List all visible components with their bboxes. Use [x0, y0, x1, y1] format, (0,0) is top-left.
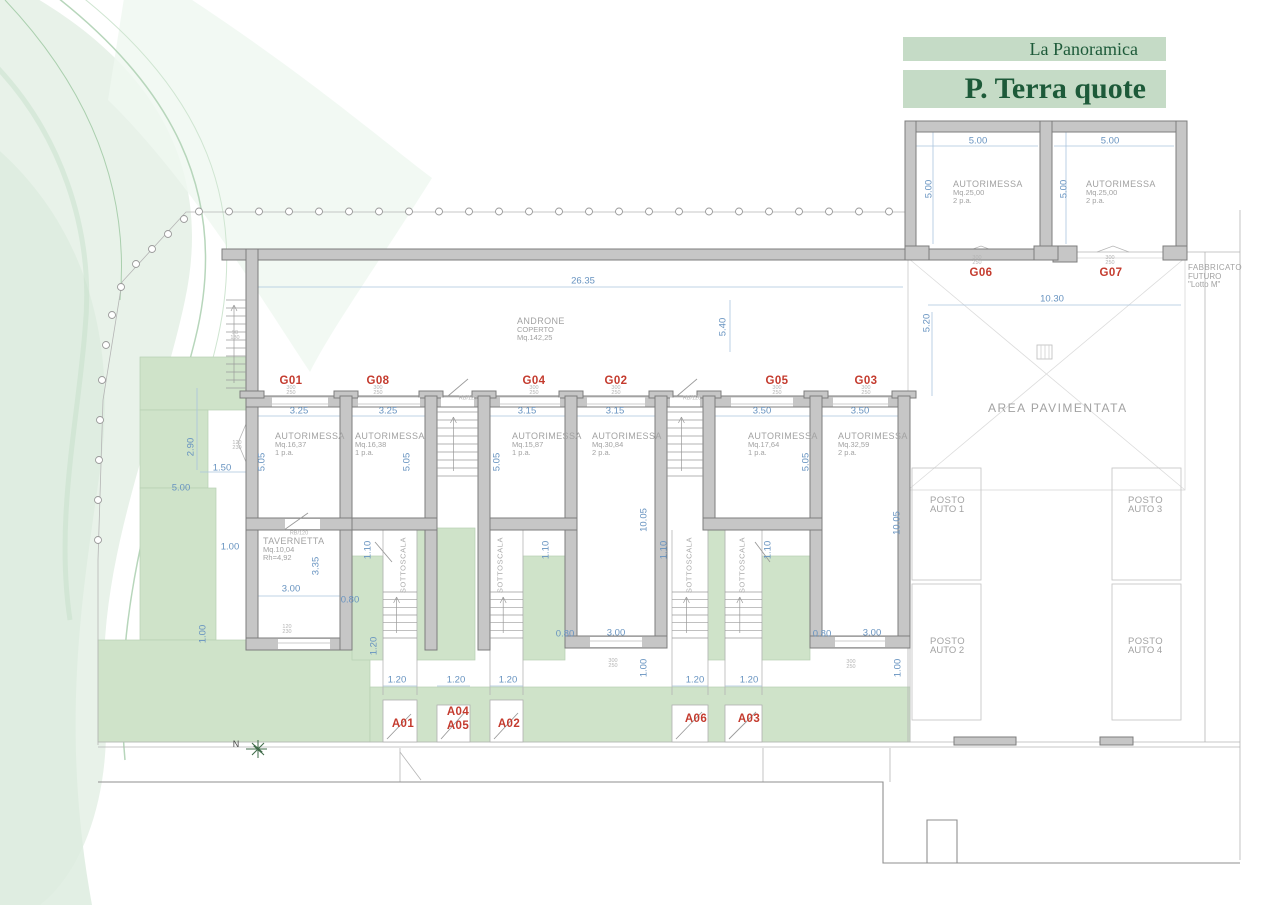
sottoscala-label: SOTTOSCALA — [399, 537, 408, 593]
room-label: AUTORIMESSAMq.16,381 p.a. — [355, 431, 425, 457]
dimension-label: 1.00 — [639, 659, 650, 678]
size-tag-label: 300 250 — [286, 386, 295, 396]
dimension-label: 5.00 — [172, 483, 191, 494]
unit-label-a04: A04 — [447, 706, 469, 718]
dimension-label: 0.80 — [341, 595, 360, 606]
size-tag-label: 300 250 — [846, 660, 855, 670]
sottoscala-label: SOTTOSCALA — [496, 537, 505, 593]
room-label: POSTOAUTO 1 — [930, 496, 965, 514]
dimension-label: 1.20 — [388, 675, 407, 686]
room-label: AUTORIMESSAMq.25,002 p.a. — [953, 179, 1023, 205]
dimension-label: 10.30 — [1040, 294, 1064, 305]
dimension-label: 5.05 — [257, 453, 268, 472]
room-label: AUTORIMESSAMq.15,871 p.a. — [512, 431, 582, 457]
size-tag-label: 300 250 — [608, 659, 617, 669]
sottoscala-label: SOTTOSCALA — [738, 537, 747, 593]
dimension-label: 3.25 — [379, 406, 398, 417]
dimension-label: 10.05 — [639, 508, 650, 532]
unit-label-a03: A03 — [738, 713, 760, 725]
unit-label-a01: A01 — [392, 718, 414, 730]
size-tag-label: 120 230 — [282, 625, 291, 635]
dimension-label: 3.15 — [518, 406, 537, 417]
size-tag-label: 300 250 — [972, 256, 981, 266]
dimension-label: 1.10 — [659, 541, 670, 560]
dimension-label: 5.05 — [492, 453, 503, 472]
dimension-label: 1.10 — [541, 541, 552, 560]
size-tag-label: 300 250 — [861, 386, 870, 396]
unit-label-a05: A05 — [447, 720, 469, 732]
dimension-label: 3.00 — [282, 584, 301, 595]
size-tag-label: 300 250 — [529, 386, 538, 396]
size-tag-label: 300 250 — [1105, 256, 1114, 266]
room-label: POSTOAUTO 4 — [1128, 637, 1163, 655]
dimension-label: 3.00 — [607, 628, 626, 639]
dimension-label: 5.00 — [924, 180, 935, 199]
room-label: AUTORIMESSAMq.30,842 p.a. — [592, 431, 662, 457]
size-tag-label: 120 230 — [232, 441, 241, 451]
dimension-label: 5.00 — [1101, 136, 1120, 147]
dimension-label: 0.80 — [813, 629, 832, 640]
unit-label-g07: G07 — [1100, 267, 1123, 279]
dimension-label: 1.20 — [369, 637, 380, 656]
dimension-label: 3.50 — [753, 406, 772, 417]
room-label: FABBRICATOFUTURO"Lotto M" — [1188, 263, 1242, 289]
unit-label-a06: A06 — [685, 713, 707, 725]
size-tag-label: 90 130 — [230, 331, 239, 341]
dimension-label: 3.50 — [851, 406, 870, 417]
unit-label-g06: G06 — [970, 267, 993, 279]
unit-label-a02: A02 — [498, 718, 520, 730]
dimension-label: 1.00 — [198, 625, 209, 644]
dimension-label: 0.80 — [556, 629, 575, 640]
sottoscala-label: SOTTOSCALA — [685, 537, 694, 593]
room-label: AUTORIMESSAMq.32,592 p.a. — [838, 431, 908, 457]
dimension-label: 1.20 — [499, 675, 518, 686]
dimension-label: 1.50 — [213, 463, 232, 474]
dimension-label: 3.25 — [290, 406, 309, 417]
dimension-label: 1.20 — [686, 675, 705, 686]
size-tag-label: RB/120 — [459, 397, 477, 402]
dimension-label: 5.00 — [969, 136, 988, 147]
room-label: AREA PAVIMENTATA — [988, 403, 1128, 413]
dimension-label: 5.40 — [718, 318, 729, 337]
dimension-label: 1.20 — [447, 675, 466, 686]
annotation-layer: 26.355.403.253.253.153.153.503.505.055.0… — [0, 0, 1280, 905]
size-tag-label: RB/120 — [683, 397, 701, 402]
room-label: AUTORIMESSAMq.17,641 p.a. — [748, 431, 818, 457]
size-tag-label: 300 250 — [373, 386, 382, 396]
dimension-label: 1.10 — [363, 541, 374, 560]
room-label: TAVERNETTAMq.10,04Rh=4,92 — [263, 536, 325, 562]
dimension-label: 1.20 — [740, 675, 759, 686]
dimension-label: 5.20 — [922, 314, 933, 333]
room-label: AUTORIMESSAMq.16,371 p.a. — [275, 431, 345, 457]
room-label: ANDRONECOPERTOMq.142,25 — [517, 316, 565, 342]
floor-plan-sheet: La Panoramica P. Terra quote 26.355.403.… — [0, 0, 1280, 905]
dimension-label: 1.00 — [893, 659, 904, 678]
room-label: POSTOAUTO 3 — [1128, 496, 1163, 514]
north-label: N — [233, 739, 240, 749]
room-label: AUTORIMESSAMq.25,002 p.a. — [1086, 179, 1156, 205]
room-label: POSTOAUTO 2 — [930, 637, 965, 655]
dimension-label: 1.00 — [221, 542, 240, 553]
size-tag-label: 300 250 — [611, 386, 620, 396]
dimension-label: 10.05 — [892, 511, 903, 535]
dimension-label: 26.35 — [571, 276, 595, 287]
dimension-label: 3.15 — [606, 406, 625, 417]
dimension-label: 3.00 — [863, 628, 882, 639]
dimension-label: 1.10 — [763, 541, 774, 560]
dimension-label: 2.90 — [186, 438, 197, 457]
size-tag-label: 300 250 — [772, 386, 781, 396]
dimension-label: 5.00 — [1059, 180, 1070, 199]
